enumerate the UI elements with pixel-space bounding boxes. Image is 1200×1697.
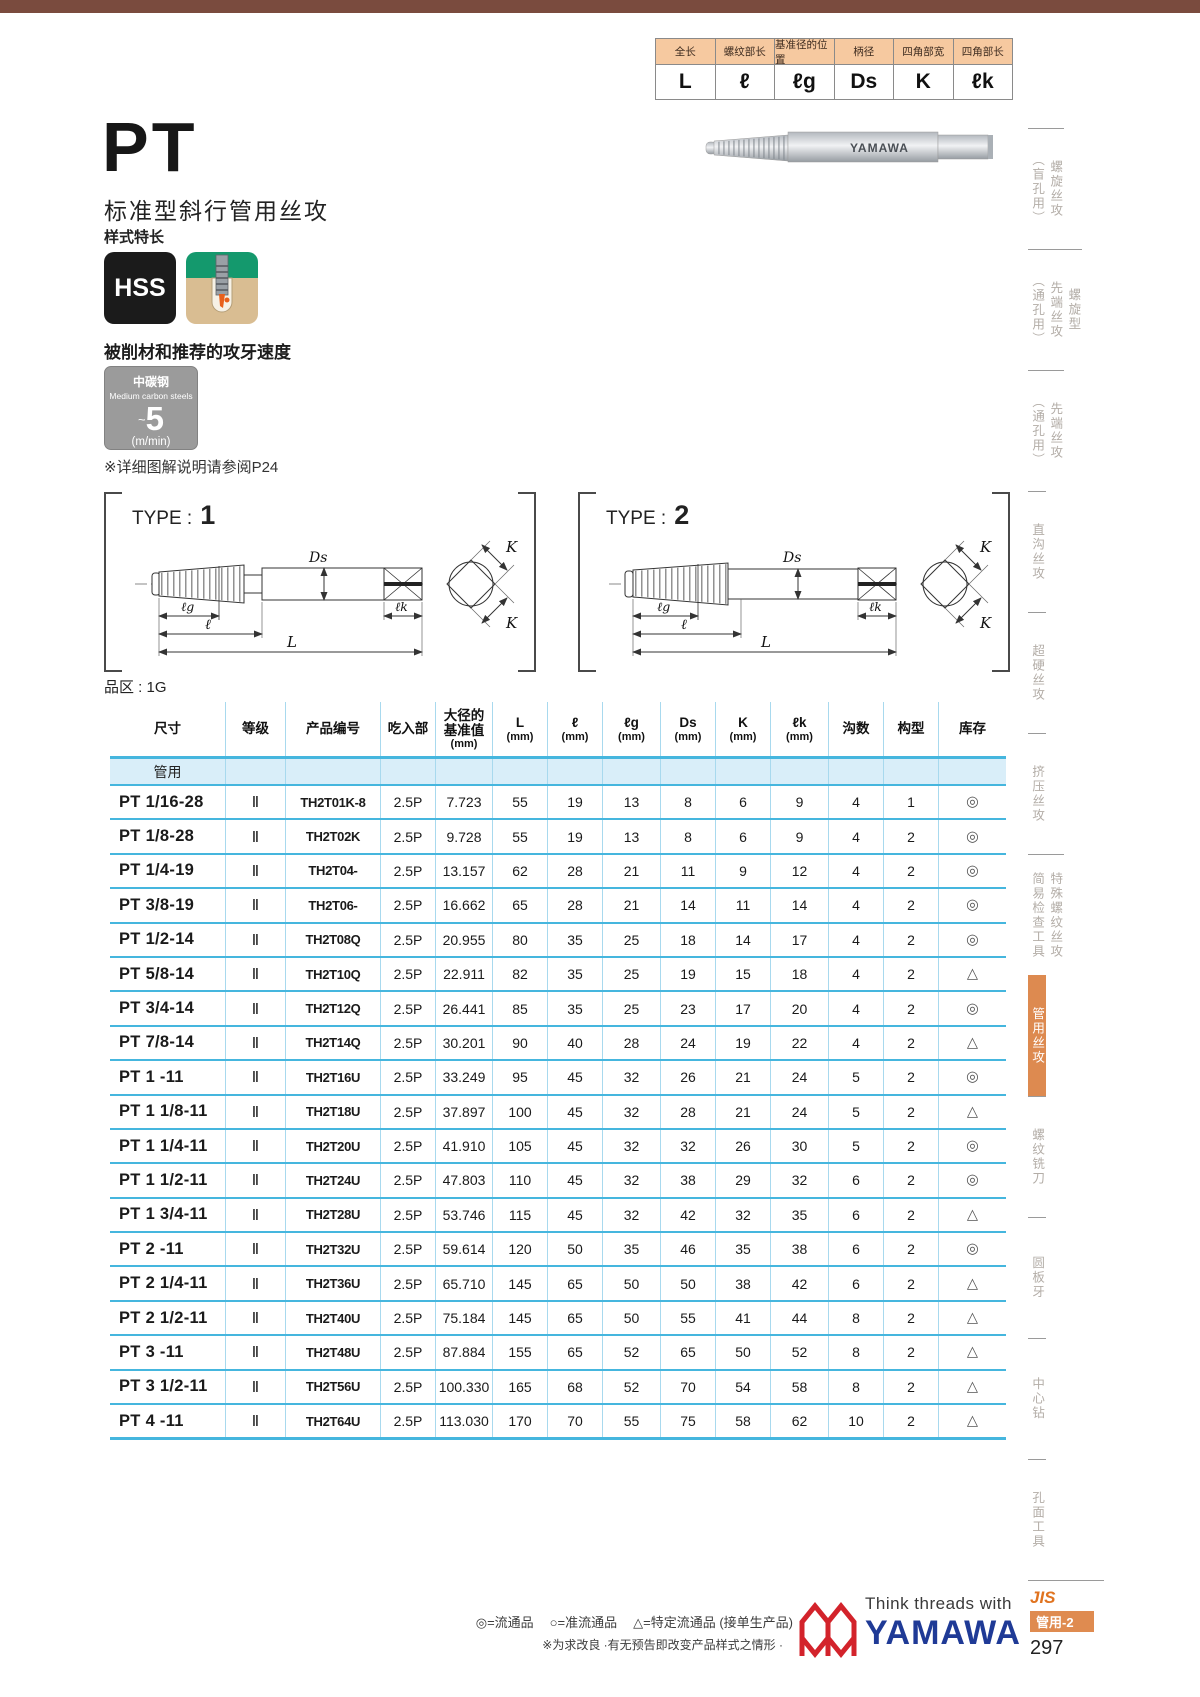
photo-brand-text: YAMAWA <box>850 141 909 155</box>
cell-k: 54 <box>715 1371 770 1403</box>
cell-major-dia: 75.184 <box>435 1302 492 1334</box>
table-row: PT 4 -11 Ⅱ TH2T64U 2.5P 113.030 170 70 5… <box>110 1405 1006 1439</box>
series-note: 品区 : 1G <box>104 676 167 697</box>
cell-l: 28 <box>547 855 602 887</box>
cell-form: 2 <box>883 820 938 852</box>
cell-lk: 24 <box>770 1061 828 1093</box>
cell-ds: 26 <box>660 1061 715 1093</box>
svg-text:K: K <box>505 538 518 556</box>
cell-chamfer: 2.5P <box>380 1302 435 1334</box>
sidebar-tab[interactable]: 螺旋丝攻 （盲孔用） <box>1028 128 1064 249</box>
cell-k: 21 <box>715 1061 770 1093</box>
cell-major-dia: 65.710 <box>435 1267 492 1299</box>
cell-flutes: 6 <box>828 1233 883 1265</box>
cell-k: 21 <box>715 1096 770 1128</box>
cell-grade: Ⅱ <box>225 1336 285 1368</box>
table-body: PT 1/16-28 Ⅱ TH2T01K-8 2.5P 7.723 55 19 … <box>110 786 1006 1440</box>
cell-form: 2 <box>883 958 938 990</box>
table-group-row: 管用 <box>110 759 1006 786</box>
cell-lk: 44 <box>770 1302 828 1334</box>
cell-stock-status: ◎ <box>938 1130 1006 1162</box>
cell-form: 2 <box>883 1130 938 1162</box>
cell-lk: 18 <box>770 958 828 990</box>
dimension-legend-symbol: Ds <box>835 65 894 99</box>
sidebar-tab[interactable]: 螺纹铣刀 <box>1028 1096 1046 1217</box>
cell-chamfer: 2.5P <box>380 992 435 1024</box>
cell-l: 45 <box>547 1164 602 1196</box>
cell-chamfer: 2.5P <box>380 889 435 921</box>
cell-size: PT 4 -11 <box>110 1405 225 1437</box>
cell-product-code: TH2T01K-8 <box>285 786 380 818</box>
cell-product-code: TH2T20U <box>285 1130 380 1162</box>
cell-L: 80 <box>492 924 547 956</box>
table-row: PT 1 1/8-11 Ⅱ TH2T18U 2.5P 37.897 100 45… <box>110 1096 1006 1130</box>
cell-major-dia: 59.614 <box>435 1233 492 1265</box>
table-header-cell: 大径的 基准值 (mm) <box>435 702 492 756</box>
table-row: PT 1/2-14 Ⅱ TH2T08Q 2.5P 20.955 80 35 25… <box>110 924 1006 958</box>
product-spec-table: 尺寸 等级 产品编号 吃入部 大 <box>110 702 1006 1440</box>
sidebar-tab[interactable]: 圆板牙 <box>1028 1217 1046 1338</box>
table-row: PT 3 1/2-11 Ⅱ TH2T56U 2.5P 100.330 165 6… <box>110 1371 1006 1405</box>
cell-stock-status: ◎ <box>938 1233 1006 1265</box>
cell-chamfer: 2.5P <box>380 1233 435 1265</box>
cell-form: 2 <box>883 1096 938 1128</box>
cell-major-dia: 113.030 <box>435 1405 492 1437</box>
cell-major-dia: 20.955 <box>435 924 492 956</box>
cell-size: PT 1/2-14 <box>110 924 225 956</box>
cell-chamfer: 2.5P <box>380 1336 435 1368</box>
cell-stock-status: ◎ <box>938 992 1006 1024</box>
cell-lk: 20 <box>770 992 828 1024</box>
cell-lg: 25 <box>602 958 660 990</box>
cell-flutes: 4 <box>828 924 883 956</box>
cell-grade: Ⅱ <box>225 992 285 1024</box>
cell-grade: Ⅱ <box>225 1130 285 1162</box>
dimension-legend-symbol: K <box>894 65 953 99</box>
cell-grade: Ⅱ <box>225 958 285 990</box>
dimension-legend-label: 螺纹部长 <box>716 39 775 65</box>
cell-form: 2 <box>883 1233 938 1265</box>
disclaimer-note: ※为求改良 ·有无预告即改变产品样式之情形 · <box>378 1636 793 1653</box>
svg-text:ℓk: ℓk <box>869 599 882 614</box>
cell-grade: Ⅱ <box>225 1164 285 1196</box>
type1-diagram-panel: TYPE :1 Ds ℓg <box>104 492 536 672</box>
cell-form: 2 <box>883 1199 938 1231</box>
cell-form: 2 <box>883 1405 938 1437</box>
cell-flutes: 6 <box>828 1164 883 1196</box>
table-row: PT 1/8-28 Ⅱ TH2T02K 2.5P 9.728 55 19 13 … <box>110 820 1006 854</box>
svg-text:ℓg: ℓg <box>181 599 194 614</box>
table-header-cell: ℓ (mm) <box>547 702 602 756</box>
table-header-cell: 吃入部 <box>380 702 435 756</box>
cell-L: 55 <box>492 820 547 852</box>
table-row: PT 1 3/4-11 Ⅱ TH2T28U 2.5P 53.746 115 45… <box>110 1199 1006 1233</box>
table-header-cell: K (mm) <box>715 702 770 756</box>
catalog-page: 全长 L 螺纹部长 ℓ 基准径的位置 ℓg 柄径 Ds 四角部宽 K <box>0 0 1200 1697</box>
cell-ds: 8 <box>660 820 715 852</box>
page-subtitle: 标准型斜行管用丝攻 <box>104 192 329 226</box>
cell-size: PT 1 -11 <box>110 1061 225 1093</box>
dimension-legend-cell: 四角部长 ℓk <box>953 39 1013 99</box>
cell-ds: 46 <box>660 1233 715 1265</box>
cell-lk: 58 <box>770 1371 828 1403</box>
cell-size: PT 1 1/4-11 <box>110 1130 225 1162</box>
cell-flutes: 8 <box>828 1371 883 1403</box>
svg-text:ℓk: ℓk <box>395 599 408 614</box>
cell-flutes: 4 <box>828 958 883 990</box>
cell-chamfer: 2.5P <box>380 924 435 956</box>
cell-flutes: 5 <box>828 1061 883 1093</box>
cell-size: PT 1 3/4-11 <box>110 1199 225 1231</box>
svg-text:K: K <box>979 538 992 556</box>
cell-k: 11 <box>715 889 770 921</box>
cell-flutes: 10 <box>828 1405 883 1437</box>
cell-form: 2 <box>883 1061 938 1093</box>
cell-product-code: TH2T40U <box>285 1302 380 1334</box>
cell-chamfer: 2.5P <box>380 855 435 887</box>
cell-k: 32 <box>715 1199 770 1231</box>
cell-lk: 9 <box>770 786 828 818</box>
right-bracket <box>518 492 536 672</box>
cell-k: 50 <box>715 1336 770 1368</box>
cell-lg: 52 <box>602 1336 660 1368</box>
cell-k: 29 <box>715 1164 770 1196</box>
cell-flutes: 4 <box>828 992 883 1024</box>
cell-form: 2 <box>883 992 938 1024</box>
cell-L: 120 <box>492 1233 547 1265</box>
cell-k: 26 <box>715 1130 770 1162</box>
cell-grade: Ⅱ <box>225 1371 285 1403</box>
cell-flutes: 5 <box>828 1130 883 1162</box>
dimension-legend-cell: 螺纹部长 ℓ <box>715 39 775 99</box>
cell-stock-status: △ <box>938 1405 1006 1437</box>
cell-lk: 9 <box>770 820 828 852</box>
cell-flutes: 4 <box>828 1027 883 1059</box>
cell-lk: 22 <box>770 1027 828 1059</box>
table-header-cell: L (mm) <box>492 702 547 756</box>
cell-product-code: TH2T56U <box>285 1371 380 1403</box>
cell-stock-status: △ <box>938 1096 1006 1128</box>
cell-grade: Ⅱ <box>225 1267 285 1299</box>
cell-size: PT 3/4-14 <box>110 992 225 1024</box>
cell-stock-status: ◎ <box>938 820 1006 852</box>
cell-product-code: TH2T48U <box>285 1336 380 1368</box>
cell-ds: 28 <box>660 1096 715 1128</box>
dimension-legend-label: 四角部宽 <box>894 39 953 65</box>
cell-chamfer: 2.5P <box>380 958 435 990</box>
cell-L: 145 <box>492 1267 547 1299</box>
table-header-cell: 尺寸 <box>110 702 225 756</box>
page-index-block: JIS 管用-2 297 <box>1030 1588 1104 1660</box>
standard-label: JIS <box>1030 1588 1104 1608</box>
table-header-cell: 沟数 <box>828 702 883 756</box>
sidebar-tab[interactable]: 螺旋型 先端丝攻 （通孔用） <box>1028 249 1082 370</box>
cell-major-dia: 7.723 <box>435 786 492 818</box>
cell-flutes: 4 <box>828 889 883 921</box>
cell-major-dia: 16.662 <box>435 889 492 921</box>
cell-stock-status: △ <box>938 1199 1006 1231</box>
svg-text:Ds: Ds <box>782 550 801 566</box>
cell-lg: 13 <box>602 786 660 818</box>
dimension-legend-label: 四角部长 <box>954 39 1013 65</box>
cell-lg: 13 <box>602 820 660 852</box>
cell-major-dia: 33.249 <box>435 1061 492 1093</box>
cell-L: 105 <box>492 1130 547 1162</box>
yamawa-logo-mark <box>798 1594 858 1658</box>
cell-size: PT 1/16-28 <box>110 786 225 818</box>
cell-stock-status: ◎ <box>938 889 1006 921</box>
table-header-cell: Ds (mm) <box>660 702 715 756</box>
cell-lk: 62 <box>770 1405 828 1437</box>
cell-L: 170 <box>492 1405 547 1437</box>
cell-size: PT 1/8-28 <box>110 820 225 852</box>
cell-l: 19 <box>547 786 602 818</box>
category-badge: 管用-2 <box>1030 1611 1094 1632</box>
cell-major-dia: 26.441 <box>435 992 492 1024</box>
category-sidebar: 螺旋丝攻 （盲孔用） 螺旋型 先端丝攻 （通孔用） 先端丝攻 （通孔用） 直沟丝… <box>1028 128 1104 1581</box>
cell-chamfer: 2.5P <box>380 820 435 852</box>
hss-material-badge: HSS <box>104 252 176 324</box>
type2-diagram-panel: TYPE :2 Ds ℓg ℓ <box>578 492 1010 672</box>
cell-major-dia: 100.330 <box>435 1371 492 1403</box>
dimension-legend-symbol: ℓ <box>716 65 775 99</box>
page-top-bar <box>0 0 1200 13</box>
cell-stock-status: △ <box>938 1336 1006 1368</box>
table-group-label: 管用 <box>110 759 225 784</box>
svg-text:L: L <box>286 633 297 651</box>
cell-grade: Ⅱ <box>225 1302 285 1334</box>
stock-legend-item: △=特定流通品 (接单生产品) <box>633 1615 793 1630</box>
cell-size: PT 1/4-19 <box>110 855 225 887</box>
table-row: PT 3/8-19 Ⅱ TH2T06- 2.5P 16.662 65 28 21… <box>110 889 1006 923</box>
cell-stock-status: ◎ <box>938 855 1006 887</box>
page-number: 297 <box>1030 1637 1104 1660</box>
cell-major-dia: 30.201 <box>435 1027 492 1059</box>
cell-stock-status: ◎ <box>938 924 1006 956</box>
table-header-row: 尺寸 等级 产品编号 吃入部 大 <box>110 702 1006 759</box>
table-row: PT 2 -11 Ⅱ TH2T32U 2.5P 59.614 120 50 35… <box>110 1233 1006 1267</box>
sidebar-tab[interactable]: 先端丝攻 （通孔用） <box>1028 370 1064 491</box>
sidebar-tab[interactable]: 孔面工具 <box>1028 1459 1046 1580</box>
cell-lg: 28 <box>602 1027 660 1059</box>
brand-block: Think threads with YAMAWA <box>798 1594 1021 1658</box>
cell-product-code: TH2T04- <box>285 855 380 887</box>
cell-chamfer: 2.5P <box>380 1405 435 1437</box>
cell-size: PT 2 1/4-11 <box>110 1267 225 1299</box>
cell-ds: 24 <box>660 1027 715 1059</box>
cell-l: 65 <box>547 1267 602 1299</box>
table-row: PT 2 1/4-11 Ⅱ TH2T36U 2.5P 65.710 145 65… <box>110 1267 1006 1301</box>
table-row: PT 3 -11 Ⅱ TH2T48U 2.5P 87.884 155 65 52… <box>110 1336 1006 1370</box>
sidebar-tab[interactable]: 中心钻 <box>1028 1338 1046 1459</box>
cell-grade: Ⅱ <box>225 1096 285 1128</box>
cell-L: 62 <box>492 855 547 887</box>
cell-k: 35 <box>715 1233 770 1265</box>
cell-grade: Ⅱ <box>225 889 285 921</box>
stock-legend-item: ○=准流通品 <box>550 1615 617 1630</box>
cell-major-dia: 13.157 <box>435 855 492 887</box>
cell-product-code: TH2T14Q <box>285 1027 380 1059</box>
cell-ds: 18 <box>660 924 715 956</box>
cell-form: 2 <box>883 1027 938 1059</box>
cell-ds: 38 <box>660 1164 715 1196</box>
cell-ds: 55 <box>660 1302 715 1334</box>
cell-chamfer: 2.5P <box>380 1027 435 1059</box>
cell-lg: 32 <box>602 1130 660 1162</box>
cell-flutes: 6 <box>828 1267 883 1299</box>
cell-grade: Ⅱ <box>225 786 285 818</box>
cell-size: PT 3/8-19 <box>110 889 225 921</box>
cell-form: 2 <box>883 1164 938 1196</box>
cell-stock-status: ◎ <box>938 1164 1006 1196</box>
cell-form: 2 <box>883 1336 938 1368</box>
cell-k: 15 <box>715 958 770 990</box>
cell-grade: Ⅱ <box>225 1061 285 1093</box>
cell-grade: Ⅱ <box>225 820 285 852</box>
cell-lg: 21 <box>602 889 660 921</box>
cell-lk: 38 <box>770 1233 828 1265</box>
cell-ds: 42 <box>660 1199 715 1231</box>
cell-product-code: TH2T24U <box>285 1164 380 1196</box>
sidebar-tab[interactable]: 超硬丝攻 <box>1028 612 1046 733</box>
cell-L: 82 <box>492 958 547 990</box>
table-header-cell: ℓk (mm) <box>770 702 828 756</box>
dimension-legend-table: 全长 L 螺纹部长 ℓ 基准径的位置 ℓg 柄径 Ds 四角部宽 K <box>655 38 1013 100</box>
cell-lg: 21 <box>602 855 660 887</box>
cell-ds: 75 <box>660 1405 715 1437</box>
cell-lg: 32 <box>602 1061 660 1093</box>
cell-lg: 25 <box>602 992 660 1024</box>
cell-chamfer: 2.5P <box>380 786 435 818</box>
cell-ds: 65 <box>660 1336 715 1368</box>
sidebar-tab[interactable]: 特殊螺纹丝攻 简易检查工具 <box>1028 854 1064 975</box>
cell-l: 50 <box>547 1233 602 1265</box>
cell-product-code: TH2T08Q <box>285 924 380 956</box>
speed-unit: (m/min) <box>105 436 197 448</box>
cell-lg: 50 <box>602 1267 660 1299</box>
cell-grade: Ⅱ <box>225 1405 285 1437</box>
svg-text:K: K <box>505 614 518 632</box>
cell-size: PT 3 1/2-11 <box>110 1371 225 1403</box>
dimension-legend-symbol: ℓk <box>954 65 1013 99</box>
table-row: PT 2 1/2-11 Ⅱ TH2T40U 2.5P 75.184 145 65… <box>110 1302 1006 1336</box>
cell-lk: 35 <box>770 1199 828 1231</box>
cell-product-code: TH2T02K <box>285 820 380 852</box>
cell-L: 90 <box>492 1027 547 1059</box>
cell-stock-status: ◎ <box>938 1061 1006 1093</box>
cell-stock-status: △ <box>938 1371 1006 1403</box>
cell-product-code: TH2T06- <box>285 889 380 921</box>
cell-lk: 52 <box>770 1336 828 1368</box>
dimension-legend-cell: 全长 L <box>656 39 715 99</box>
cell-l: 45 <box>547 1130 602 1162</box>
cell-chamfer: 2.5P <box>380 1061 435 1093</box>
cell-flutes: 8 <box>828 1336 883 1368</box>
dimension-legend-symbol: ℓg <box>775 65 834 99</box>
cell-form: 2 <box>883 1302 938 1334</box>
cell-major-dia: 87.884 <box>435 1336 492 1368</box>
cell-l: 35 <box>547 958 602 990</box>
brand-name: YAMAWA <box>865 1616 1021 1650</box>
cell-product-code: TH2T28U <box>285 1199 380 1231</box>
type1-technical-drawing: Ds ℓg ℓ L ℓk K K <box>119 520 519 668</box>
speed-section-heading: 被削材和推荐的攻牙速度 <box>104 338 291 363</box>
svg-text:ℓg: ℓg <box>657 599 670 614</box>
cell-chamfer: 2.5P <box>380 1130 435 1162</box>
cell-flutes: 5 <box>828 1096 883 1128</box>
cell-product-code: TH2T36U <box>285 1267 380 1299</box>
speed-material-cn: 中碳钢 <box>105 373 197 390</box>
cell-major-dia: 37.897 <box>435 1096 492 1128</box>
cell-lk: 42 <box>770 1267 828 1299</box>
cell-lg: 35 <box>602 1233 660 1265</box>
cell-l: 45 <box>547 1199 602 1231</box>
cell-major-dia: 22.911 <box>435 958 492 990</box>
sidebar-tab[interactable]: 直沟丝攻 <box>1028 491 1046 612</box>
cell-L: 115 <box>492 1199 547 1231</box>
cell-k: 38 <box>715 1267 770 1299</box>
table-header-cell: 等级 <box>225 702 285 756</box>
table-header-cell: ℓg (mm) <box>602 702 660 756</box>
cell-major-dia: 9.728 <box>435 820 492 852</box>
style-note: 样式特长 <box>104 226 164 247</box>
cell-product-code: TH2T32U <box>285 1233 380 1265</box>
cell-k: 41 <box>715 1302 770 1334</box>
table-header-cell: 构型 <box>883 702 938 756</box>
cell-lk: 17 <box>770 924 828 956</box>
cell-l: 35 <box>547 992 602 1024</box>
cell-lk: 30 <box>770 1130 828 1162</box>
cell-k: 14 <box>715 924 770 956</box>
cell-ds: 19 <box>660 958 715 990</box>
cell-L: 110 <box>492 1164 547 1196</box>
cell-lk: 14 <box>770 889 828 921</box>
table-row: PT 3/4-14 Ⅱ TH2T12Q 2.5P 26.441 85 35 25… <box>110 992 1006 1026</box>
table-row: PT 1 1/4-11 Ⅱ TH2T20U 2.5P 41.910 105 45… <box>110 1130 1006 1164</box>
cell-form: 2 <box>883 1267 938 1299</box>
cell-major-dia: 53.746 <box>435 1199 492 1231</box>
cell-form: 2 <box>883 924 938 956</box>
cell-k: 19 <box>715 1027 770 1059</box>
svg-text:K: K <box>979 614 992 632</box>
cell-L: 145 <box>492 1302 547 1334</box>
cell-lg: 55 <box>602 1405 660 1437</box>
cell-L: 65 <box>492 889 547 921</box>
cell-grade: Ⅱ <box>225 855 285 887</box>
cell-l: 65 <box>547 1336 602 1368</box>
table-row: PT 1 -11 Ⅱ TH2T16U 2.5P 33.249 95 45 32 … <box>110 1061 1006 1095</box>
stock-legend-item: ◎=流通品 <box>476 1615 534 1630</box>
table-row: PT 1/4-19 Ⅱ TH2T04- 2.5P 13.157 62 28 21… <box>110 855 1006 889</box>
sidebar-tab[interactable]: 管用丝攻 <box>1028 975 1046 1096</box>
cell-l: 70 <box>547 1405 602 1437</box>
cell-stock-status: △ <box>938 1027 1006 1059</box>
cell-stock-status: △ <box>938 1267 1006 1299</box>
cell-product-code: TH2T18U <box>285 1096 380 1128</box>
cell-major-dia: 41.910 <box>435 1130 492 1162</box>
dimension-legend-cell: 基准径的位置 ℓg <box>774 39 834 99</box>
dimension-legend-cell: 四角部宽 K <box>893 39 953 99</box>
svg-text:L: L <box>760 633 771 651</box>
cell-lg: 52 <box>602 1371 660 1403</box>
cell-chamfer: 2.5P <box>380 1267 435 1299</box>
sidebar-tab[interactable]: 挤压丝攻 <box>1028 733 1046 854</box>
cell-lg: 50 <box>602 1302 660 1334</box>
cell-form: 1 <box>883 786 938 818</box>
cell-lk: 12 <box>770 855 828 887</box>
cell-l: 45 <box>547 1061 602 1093</box>
cell-L: 100 <box>492 1096 547 1128</box>
